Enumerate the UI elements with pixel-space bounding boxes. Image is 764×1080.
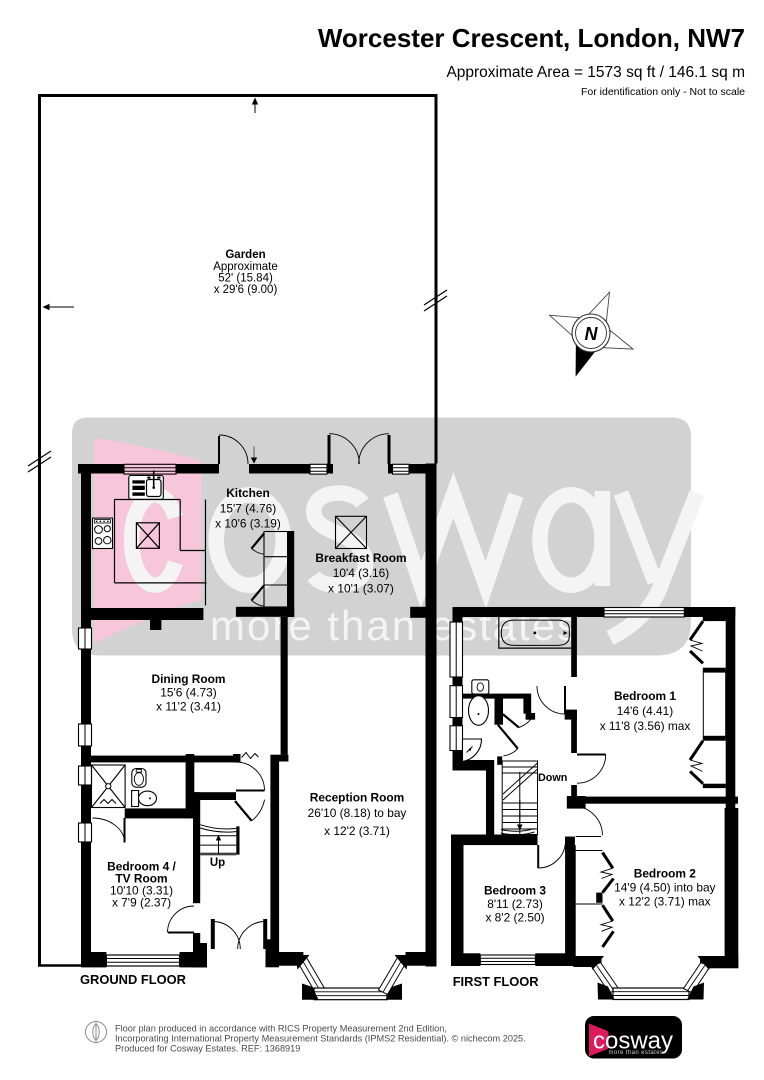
svg-text:x 10'6 (3.19): x 10'6 (3.19) xyxy=(215,517,281,531)
svg-text:Produced for Cosway Estates.: Produced for Cosway Estates. REF: 136891… xyxy=(115,1044,300,1054)
svg-text:8'11 (2.73): 8'11 (2.73) xyxy=(487,897,543,911)
svg-text:15'6 (4.73): 15'6 (4.73) xyxy=(160,686,217,700)
svg-text:26'10 (8.18) to bay: 26'10 (8.18) to bay xyxy=(308,806,407,820)
svg-text:FIRST FLOOR: FIRST FLOOR xyxy=(453,974,540,989)
svg-text:Bedroom 2: Bedroom 2 xyxy=(634,867,696,881)
svg-text:x 11'8 (3.56) max: x 11'8 (3.56) max xyxy=(600,719,691,733)
svg-text:Reception Room: Reception Room xyxy=(310,791,404,805)
svg-text:x 11'2 (3.41): x 11'2 (3.41) xyxy=(156,700,221,714)
svg-text:Kitchen: Kitchen xyxy=(226,486,270,500)
svg-text:Bedroom 3: Bedroom 3 xyxy=(484,884,546,898)
svg-text:N: N xyxy=(585,324,599,344)
svg-text:x 12'2 (3.71) max: x 12'2 (3.71) max xyxy=(619,895,711,909)
svg-text:more than estates: more than estates xyxy=(609,1050,664,1056)
svg-text:14'9 (4.50) into bay: 14'9 (4.50) into bay xyxy=(614,881,715,895)
svg-text:Up: Up xyxy=(210,857,225,869)
svg-text:15'7 (4.76): 15'7 (4.76) xyxy=(220,502,277,516)
svg-text:x 12'2 (3.71): x 12'2 (3.71) xyxy=(324,824,390,838)
svg-text:x 8'2 (2.50): x 8'2 (2.50) xyxy=(485,911,544,925)
svg-text:x 29'6 (9.00): x 29'6 (9.00) xyxy=(214,284,278,296)
svg-text:Worcester Crescent, London, NW: Worcester Crescent, London, NW7 xyxy=(318,23,745,53)
svg-text:10'4 (3.16): 10'4 (3.16) xyxy=(333,566,390,580)
svg-text:Breakfast Room: Breakfast Room xyxy=(315,551,406,565)
svg-text:Down: Down xyxy=(538,772,567,784)
svg-text:Garden: Garden xyxy=(225,249,265,261)
svg-text:Approximate: Approximate xyxy=(213,261,278,273)
svg-text:Approximate Area = 1573 sq ft: Approximate Area = 1573 sq ft / 146.1 sq… xyxy=(446,64,745,81)
svg-text:14'6 (4.41): 14'6 (4.41) xyxy=(617,704,674,718)
svg-text:52' (15.84): 52' (15.84) xyxy=(218,273,273,285)
svg-text:Bedroom 1: Bedroom 1 xyxy=(614,689,676,703)
svg-text:Floor plan produced in accorda: Floor plan produced in accordance with R… xyxy=(115,1024,447,1034)
svg-text:Dining Room: Dining Room xyxy=(152,672,226,686)
svg-text:GROUND FLOOR: GROUND FLOOR xyxy=(80,972,187,987)
svg-text:Incorporating International Pr: Incorporating International Property Mea… xyxy=(115,1034,526,1044)
svg-text:x 7'9 (2.37): x 7'9 (2.37) xyxy=(112,896,171,910)
svg-text:x 10'1 (3.07): x 10'1 (3.07) xyxy=(328,582,394,596)
svg-text:For identification only - Not: For identification only - Not to scale xyxy=(581,86,745,98)
